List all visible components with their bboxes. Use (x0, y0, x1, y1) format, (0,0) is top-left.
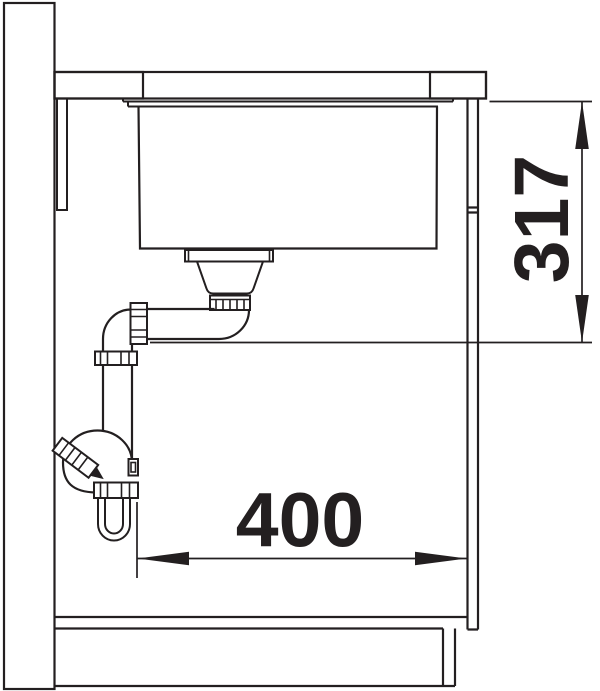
connector-body (53, 438, 99, 478)
sink-basin (139, 107, 438, 249)
sink-rim-flange (123, 99, 453, 107)
cabinet-side-panel (468, 99, 479, 630)
sink (123, 99, 453, 249)
dim-depth-arrow-down (575, 295, 589, 343)
dimension-width: 400 (137, 478, 467, 579)
drawing-canvas: 317 400 (0, 0, 600, 691)
wall-outlet-connector (53, 438, 109, 486)
cabinet-plinth (443, 629, 455, 687)
cabinet (55, 99, 479, 686)
horizontal-pipe (136, 309, 249, 339)
strainer-cup (197, 262, 263, 294)
trap-cup (98, 497, 130, 541)
dim-width-arrow-left (138, 552, 190, 565)
countertop (55, 72, 487, 99)
cabinet-bottom-panel (55, 617, 468, 629)
strainer-nut-facets (210, 300, 250, 311)
wall-section (4, 3, 55, 689)
trap-siphon (53, 431, 138, 541)
drain-strainer (185, 250, 273, 310)
trap-side-fitting (129, 459, 139, 476)
dim-depth-arrow-up (575, 102, 589, 150)
strainer-flange (185, 250, 273, 262)
countertop-right-cut (430, 72, 486, 99)
sink-section-drawing: 317 400 (0, 0, 600, 691)
dim-width-arrow-right (415, 552, 467, 565)
countertop-outline (55, 72, 487, 99)
wall-support-batten (57, 99, 67, 211)
dim-width-label: 400 (236, 478, 364, 564)
dim-depth-label: 317 (499, 155, 585, 283)
countertop-left-cut (55, 72, 144, 99)
